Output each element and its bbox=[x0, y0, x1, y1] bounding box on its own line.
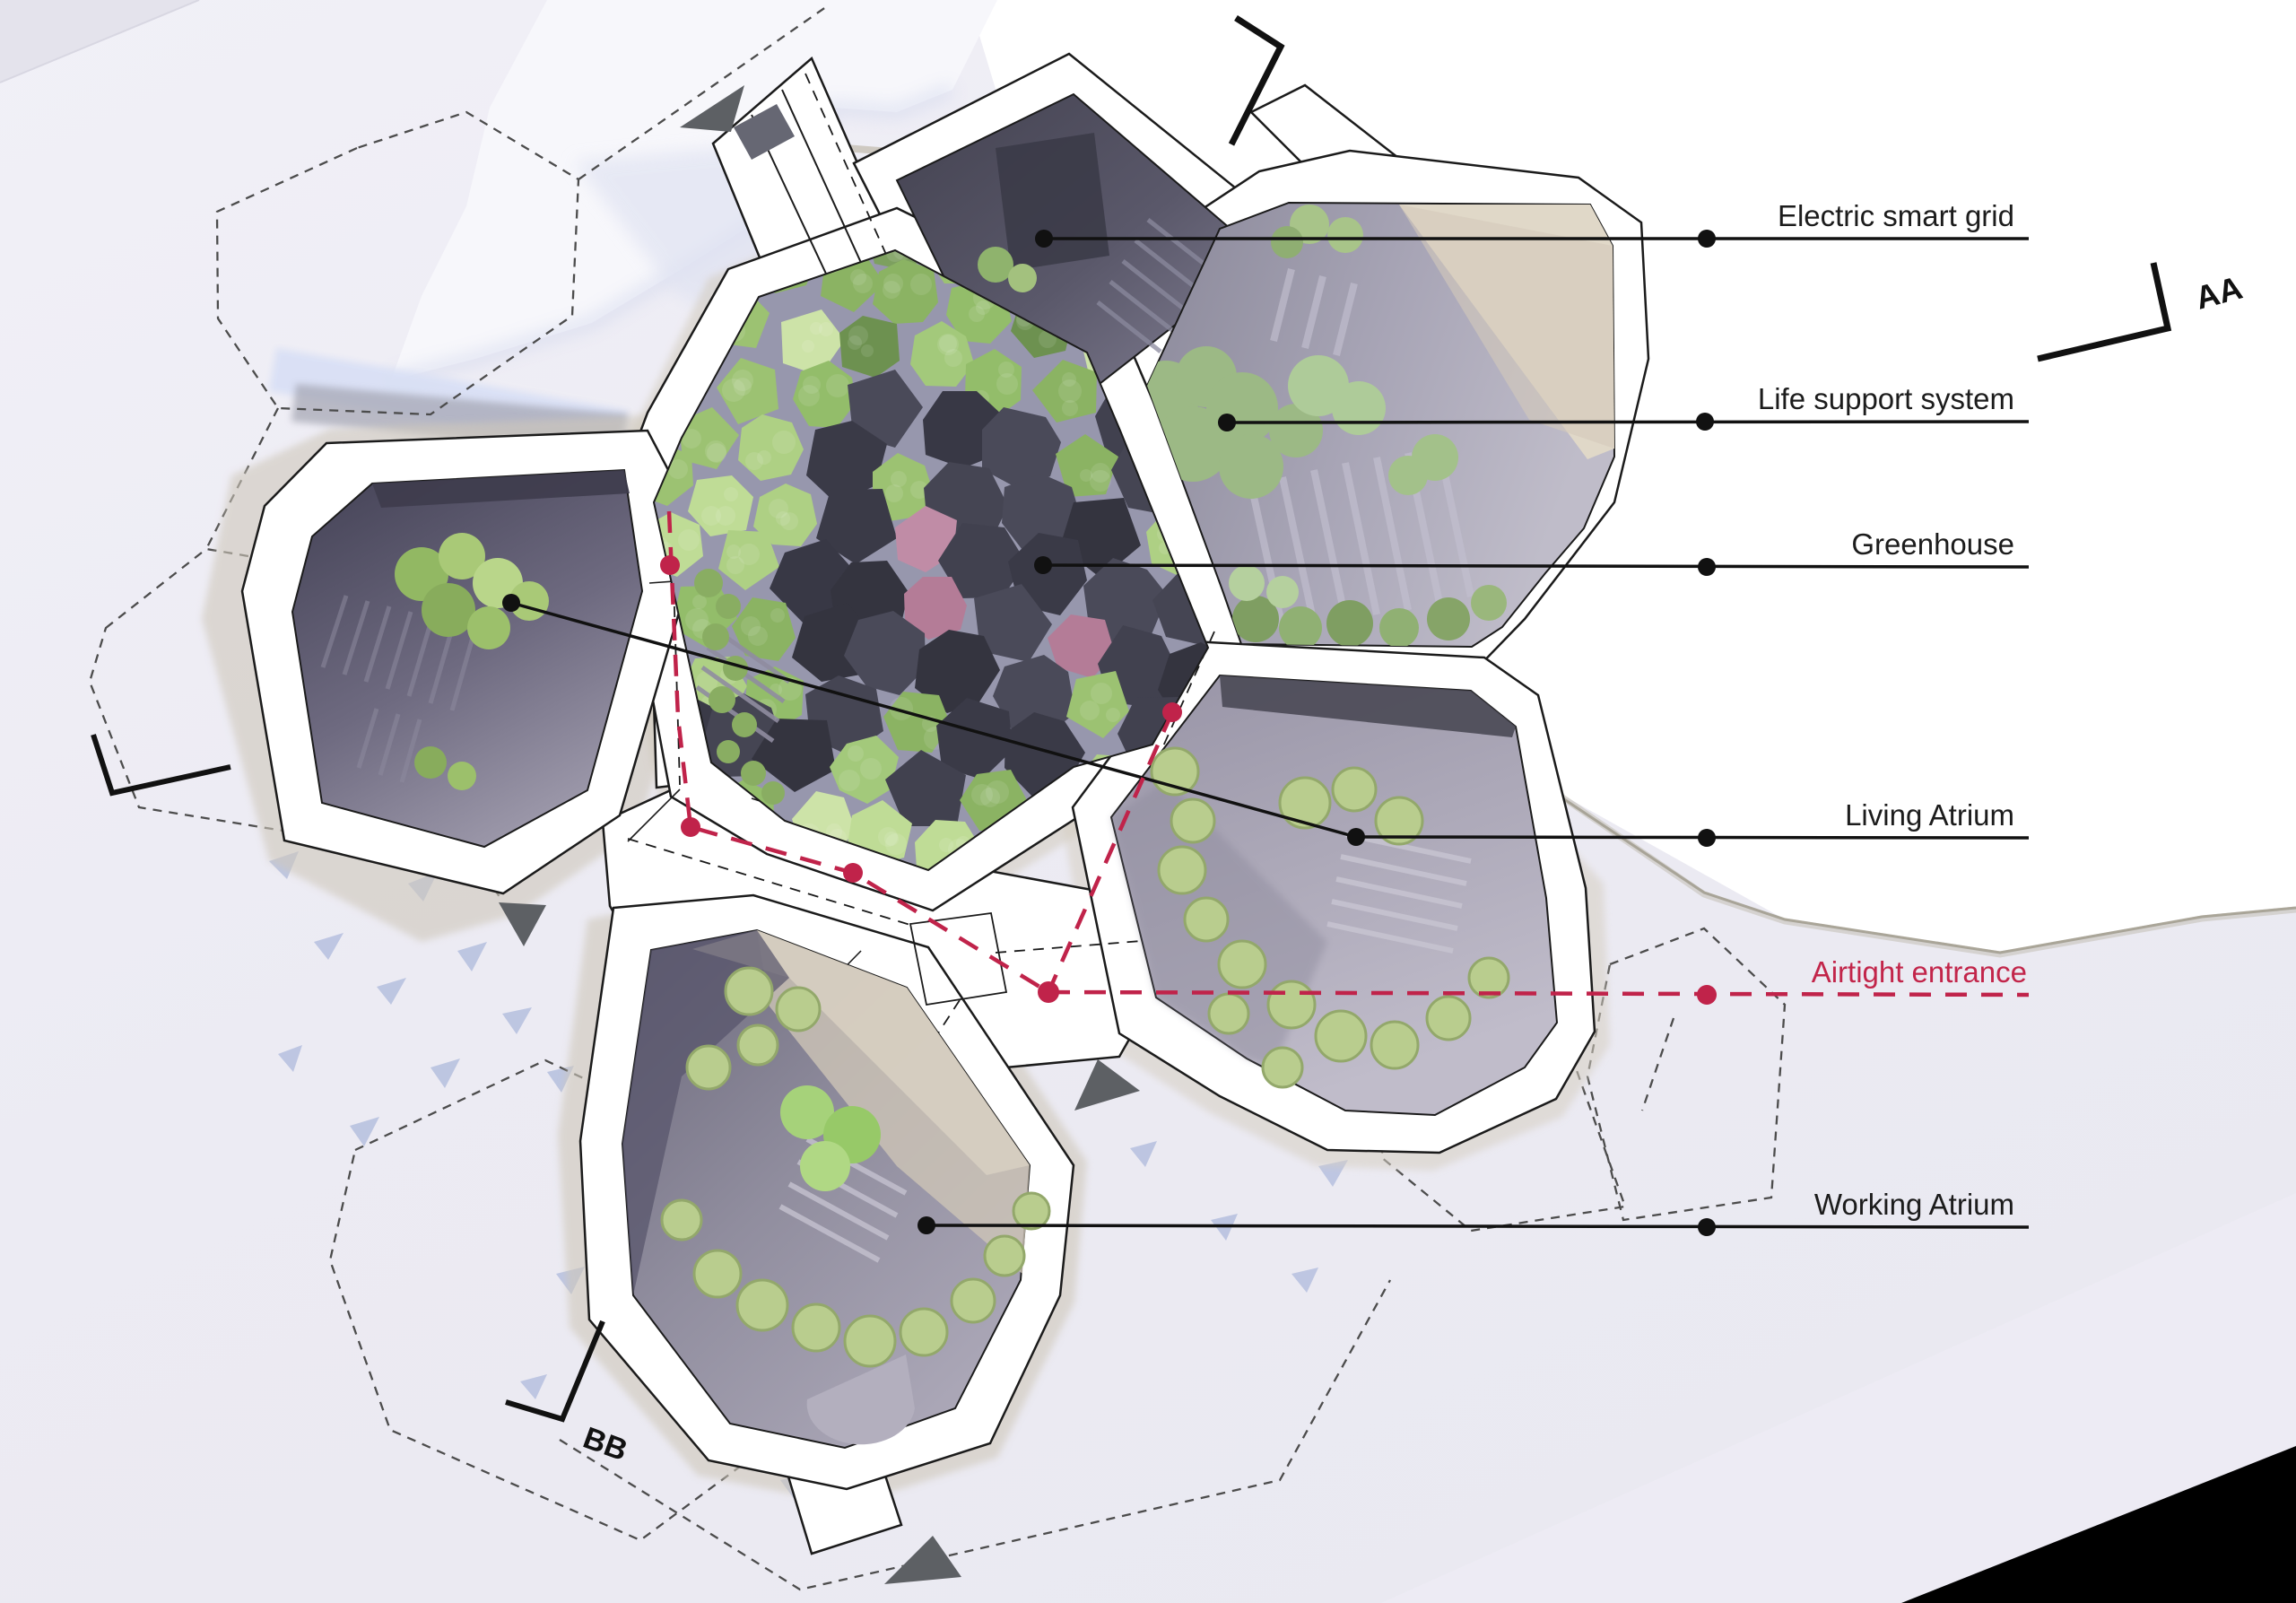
svg-text:Living Atrium: Living Atrium bbox=[1845, 798, 2014, 832]
svg-text:Airtight entrance: Airtight entrance bbox=[1812, 955, 2027, 989]
svg-text:Working Atrium: Working Atrium bbox=[1814, 1188, 2014, 1221]
svg-text:Life support system: Life support system bbox=[1758, 382, 2014, 415]
svg-text:Greenhouse: Greenhouse bbox=[1851, 527, 2014, 561]
svg-text:Electric smart grid: Electric smart grid bbox=[1778, 199, 2014, 232]
